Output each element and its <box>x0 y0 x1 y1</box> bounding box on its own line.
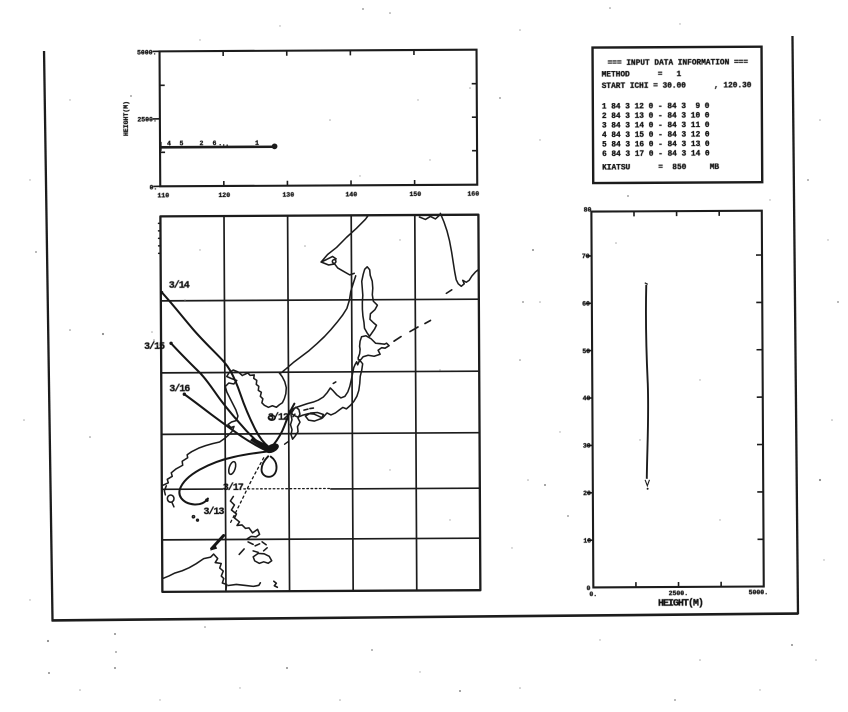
svg-text:3/15: 3/15 <box>144 341 165 353</box>
svg-text:130: 130 <box>282 192 294 199</box>
svg-text:=== INPUT DATA INFORMATION ===: === INPUT DATA INFORMATION === <box>608 59 749 68</box>
svg-text:5000.: 5000. <box>137 49 157 56</box>
svg-text:30: 30 <box>583 443 591 450</box>
svg-text:0.: 0. <box>589 591 597 598</box>
svg-text:110: 110 <box>157 192 169 199</box>
svg-text:1: 1 <box>255 140 259 147</box>
svg-text:3/16: 3/16 <box>169 383 190 395</box>
svg-text:80: 80 <box>584 207 592 214</box>
svg-text:40: 40 <box>583 395 591 402</box>
svg-text:4: 4 <box>167 140 171 147</box>
svg-text:HEIGHT(M): HEIGHT(M) <box>658 598 703 610</box>
svg-text:3/12: 3/12 <box>268 412 289 424</box>
svg-text:120: 120 <box>218 192 230 199</box>
svg-text:6 84 3 17 0 - 84 3 14 0: 6 84 3 17 0 - 84 3 14 0 <box>602 150 710 159</box>
svg-text:START ICHI = 30.00 , 120.: START ICHI = 30.00 , 120.30 <box>602 82 752 91</box>
svg-text:3/14: 3/14 <box>169 280 190 292</box>
svg-text:3/13: 3/13 <box>203 506 224 518</box>
svg-text:10: 10 <box>583 538 591 545</box>
svg-text:HEIGHT(M): HEIGHT(M) <box>123 101 130 136</box>
svg-text:3 84 3 14 0 - 84 3 11 0: 3 84 3 14 0 - 84 3 11 0 <box>602 122 710 131</box>
svg-text:5000.: 5000. <box>749 589 769 596</box>
svg-text:2500.: 2500. <box>669 590 689 597</box>
svg-text:50: 50 <box>582 348 590 355</box>
svg-text:5 84 3 16 0 - 84 3 13 0: 5 84 3 16 0 - 84 3 13 0 <box>602 141 710 150</box>
svg-text:6: 6 <box>213 140 217 147</box>
svg-text:140: 140 <box>345 191 357 198</box>
svg-text:2500.: 2500. <box>137 116 157 123</box>
svg-text:4 84 3 15 0 - 84 3 12 0: 4 84 3 15 0 - 84 3 12 0 <box>602 131 710 140</box>
svg-text:20: 20 <box>583 490 591 497</box>
svg-text:160: 160 <box>467 191 479 198</box>
svg-text:70: 70 <box>582 253 590 260</box>
svg-text:1 84 3 12 0 - 84 3 9 0: 1 84 3 12 0 - 84 3 9 0 <box>602 103 710 112</box>
svg-text:60: 60 <box>582 301 590 308</box>
svg-text:5: 5 <box>180 140 184 147</box>
svg-text:2: 2 <box>200 140 204 147</box>
svg-text:150: 150 <box>409 191 421 198</box>
svg-text:METHOD = 1: METHOD = 1 <box>602 71 682 79</box>
svg-text:0.: 0. <box>149 184 157 191</box>
svg-text:2 84 3 13 0 - 84 3 10 0: 2 84 3 13 0 - 84 3 10 0 <box>602 112 710 121</box>
svg-text:3/17: 3/17 <box>223 482 244 494</box>
svg-text:KIATSU = 850 MB: KIATSU = 850 MB <box>602 164 719 173</box>
